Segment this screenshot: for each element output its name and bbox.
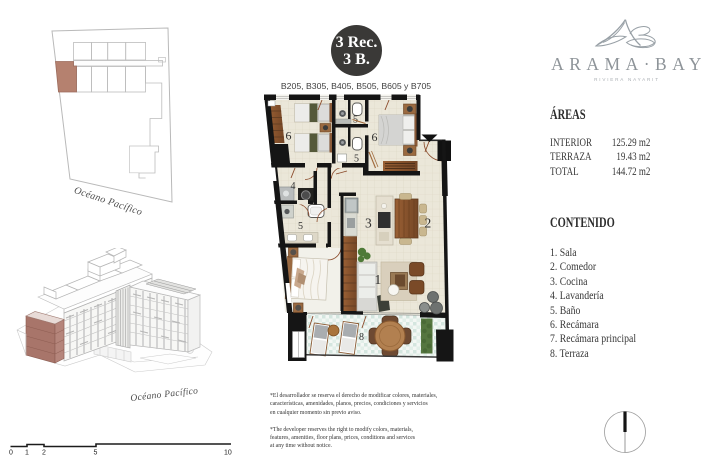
svg-text:3: 3 [365,216,372,231]
svg-text:1: 1 [375,272,382,287]
svg-text:5: 5 [354,154,359,165]
svg-text:2: 2 [42,450,46,457]
svg-text:6: 6 [286,129,292,143]
svg-text:5: 5 [94,450,98,457]
svg-text:6: 6 [372,130,378,144]
svg-text:5: 5 [298,221,303,232]
svg-text:0: 0 [9,450,13,457]
svg-text:8: 8 [359,332,364,343]
svg-text:10: 10 [224,450,232,457]
svg-text:1: 1 [25,450,29,457]
svg-text:4: 4 [291,181,296,192]
svg-text:2: 2 [425,216,432,231]
